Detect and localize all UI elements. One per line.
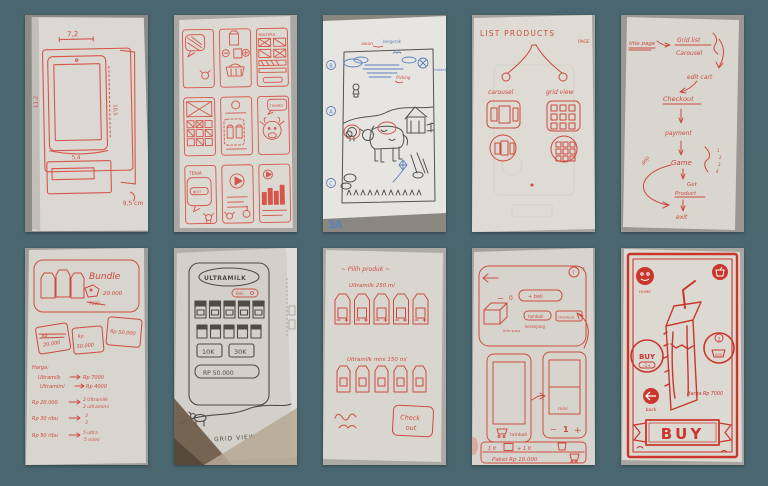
stepper-zero: 0 [509, 295, 513, 302]
cart-badge-icon [712, 264, 728, 280]
photo-user-flow-sketch: title page Grid list Carousel edit cart … [621, 15, 744, 232]
buy-side-label: BUY [639, 353, 656, 361]
ultramilk-logo: ULTRAMILK [204, 275, 246, 282]
line-ultramimi-price: Rp 4000 [86, 384, 107, 390]
qty-minus: − [550, 425, 557, 434]
line-50ribu-a: 5 ultra [83, 430, 98, 436]
line-ultramilk-price: Rp 7000 [83, 375, 104, 381]
back-label: back [646, 407, 657, 413]
paper [472, 15, 595, 232]
page-corner-mark: 3A [328, 218, 343, 231]
photo-product-detail-flow-sketch: ? ? − 0 + beli info susu tambah keranjan… [472, 248, 595, 465]
bundle-plus: + [517, 446, 521, 452]
photo-grid-view-phone-sketch: ULTRAMILK 10K 30K RP 50.000 GRID VIEW Be… [174, 248, 297, 465]
mini-label: mini [558, 406, 568, 412]
line-30ribu-b: 3 [85, 420, 88, 426]
photo-list-products-sketch: LIST PRODUCTS PAGE carousel grid view [472, 15, 595, 232]
flow-carousel: Carousel [676, 50, 703, 57]
next-label: NEXT [193, 190, 202, 194]
flow-payment: payment [664, 130, 692, 137]
measure-corner-label: 9,5 cm [123, 200, 144, 207]
line-ultramimi: Ultramimi [40, 384, 65, 390]
flow-checkout: Checkout [663, 95, 694, 103]
info-susu-label: info susu [503, 328, 521, 333]
row1-label: Ultramilk 250 ml [349, 283, 395, 289]
line-30ribu-a: 3 [85, 413, 88, 419]
keranjang-label: keranjang [525, 324, 545, 329]
page-title: LIST PRODUCTS [480, 29, 555, 38]
question-mark-2: ? [582, 267, 585, 273]
measure-width-label: 7,2 [67, 30, 78, 38]
annotation-awan: awan [361, 42, 373, 47]
tenia-label: TENIA [188, 171, 202, 177]
qty-plus: + [574, 426, 582, 436]
multiple-label: MULTIPLE [258, 33, 276, 37]
label-30k: 30K [234, 348, 247, 356]
measure-right-label: 10,5 [112, 104, 118, 115]
harga-label: Harga Rp 7000 [687, 391, 723, 397]
checkout-line2: out [405, 424, 416, 433]
line-20000: Rp 20.000 [32, 400, 58, 406]
tambah-label: tambah [528, 314, 544, 319]
photo-storyboard-grid-sketch: MULTIPLE THANKS TENIA NEXT [174, 15, 297, 232]
flow-game: Game [671, 159, 692, 167]
line-30ribu: Rp 30 ribu [32, 416, 58, 422]
bundle-lt-2: 1 lt [523, 446, 532, 452]
line-ultramilk: Ultramilk [38, 375, 62, 381]
thanks-label: THANKS [269, 104, 284, 108]
sketch-board: 7,2 11,2 10,5 5,4 9,5 cm [0, 0, 768, 486]
photo-farm-scene-sketch: B A C 3A awan bergerak matahari flicking [323, 15, 446, 232]
label-price: RP 50.000 [203, 370, 234, 377]
checkout-label: checkout [558, 316, 575, 320]
beli-label: Beli [236, 291, 243, 296]
beli-pill-label: + beli [528, 294, 543, 300]
stepper-minus: − [497, 294, 504, 303]
margin-mark-c: C [329, 182, 333, 188]
margin-mark-b: B [329, 64, 333, 70]
buy-main-label: BUY [661, 425, 704, 443]
flow-edit-cart: edit cart [687, 74, 713, 81]
margin-mark-a: A [329, 110, 333, 116]
photo-device-dimensions-sketch: 7,2 11,2 10,5 5,4 9,5 cm [25, 15, 148, 232]
cart-value-label: 000 [715, 353, 722, 357]
home-icon [636, 267, 654, 285]
annotation-matahari: matahari [434, 68, 446, 72]
flow-product: Product [675, 191, 697, 197]
tambah-bottom-label: tambah [510, 432, 528, 438]
qty-one: 1 [563, 425, 569, 434]
flow-step-1: 1 [717, 148, 720, 153]
paket-label: Paket Rp 10.000 [492, 457, 538, 463]
line-20000-a: 2 Ultramilk [83, 397, 108, 403]
pilih-produk-title: ~ Pilih produk ~ [341, 266, 390, 273]
measure-inner-label: 5,4 [72, 155, 81, 161]
photo-pilih-produk-sketch: ~ Pilih produk ~ Ultramilk 250 ml Ultram… [323, 248, 446, 465]
bundle-price: 20.000 [103, 291, 123, 297]
paper [323, 16, 446, 219]
photo-buy-screen-sketch: HOME BUY -1+ 2 000 back Harga Rp 7000 BU… [621, 248, 744, 465]
flow-get: Get [687, 182, 698, 188]
bundle-old-price: 7000 [89, 301, 100, 306]
stepper-label: -1+ [643, 363, 650, 368]
bar-chart-icon [262, 192, 266, 204]
line-50ribu-b: 5 mimi [84, 437, 100, 443]
tag1-rp: Rp [41, 333, 48, 340]
grid-view-option-label: grid view [546, 89, 574, 96]
tag2-rp: Rp [77, 333, 84, 340]
label-10k: 10K [202, 348, 215, 356]
paper [323, 250, 443, 462]
carousel-option-label: carousel [488, 89, 514, 96]
bundle-lt-1: 1 lt [488, 446, 497, 452]
annotation-flicking: flicking [396, 75, 411, 80]
page-label: PAGE [578, 39, 590, 45]
bundle-title: Bundle [89, 272, 121, 282]
home-label: HOME [639, 289, 651, 294]
photo-bundle-pricing-sketch: Bundle 20.000 7000 Rp20.000 Rp30.000 Rp … [25, 248, 148, 465]
row2-label: Ultramilk mini 150 ml [347, 357, 407, 363]
flow-exit: exit [676, 214, 688, 221]
flow-title-page: title page [629, 41, 656, 47]
harga-heading: Harga: [32, 365, 49, 371]
line-20000-b: 2 ultramimi [83, 404, 110, 410]
checkout-line1: Check [400, 413, 421, 422]
flow-grid-list: Grid list [677, 37, 701, 44]
qty-label: 2 [718, 337, 721, 343]
question-mark: ? [572, 271, 575, 277]
annotation-bergerak: bergerak [383, 39, 402, 44]
line-50ribu: Rp 50 ribu [32, 433, 58, 439]
measure-left-label: 11,2 [33, 96, 39, 108]
paper [623, 17, 739, 230]
